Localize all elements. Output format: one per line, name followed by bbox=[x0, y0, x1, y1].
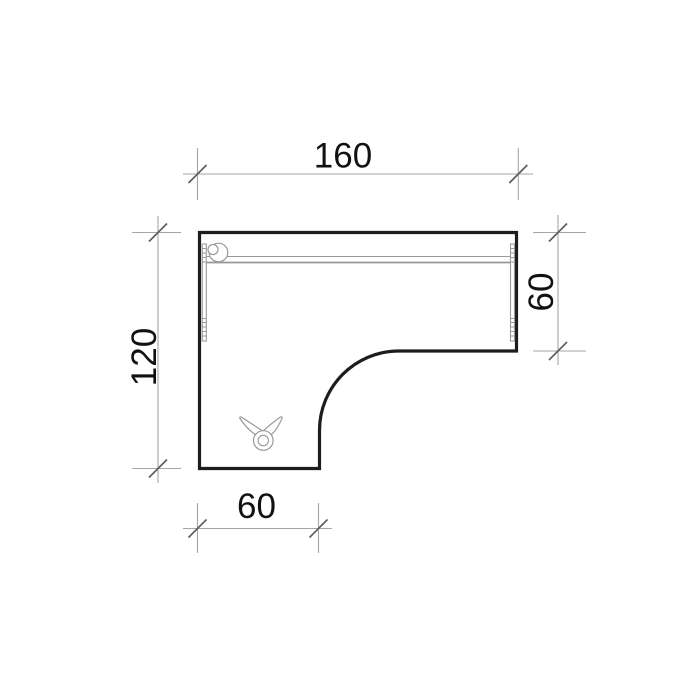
technical-drawing: 160 120 60 60 bbox=[0, 0, 700, 700]
dim-top-label: 160 bbox=[314, 137, 372, 176]
drawing-canvas: 160 120 60 60 bbox=[0, 0, 700, 700]
dimension-right: 60 bbox=[522, 215, 586, 365]
desk-outline bbox=[200, 233, 517, 469]
grommet-cover bbox=[208, 245, 218, 255]
dimension-left: 120 bbox=[125, 216, 181, 483]
dimension-bottom: 60 bbox=[183, 487, 332, 553]
dim-right-label: 60 bbox=[522, 273, 561, 312]
dim-left-label: 120 bbox=[125, 328, 164, 386]
dimension-top: 160 bbox=[183, 137, 533, 201]
dim-bottom-label: 60 bbox=[237, 487, 276, 526]
desk-top-view bbox=[200, 233, 517, 469]
clamp-ring-outer bbox=[253, 431, 273, 451]
